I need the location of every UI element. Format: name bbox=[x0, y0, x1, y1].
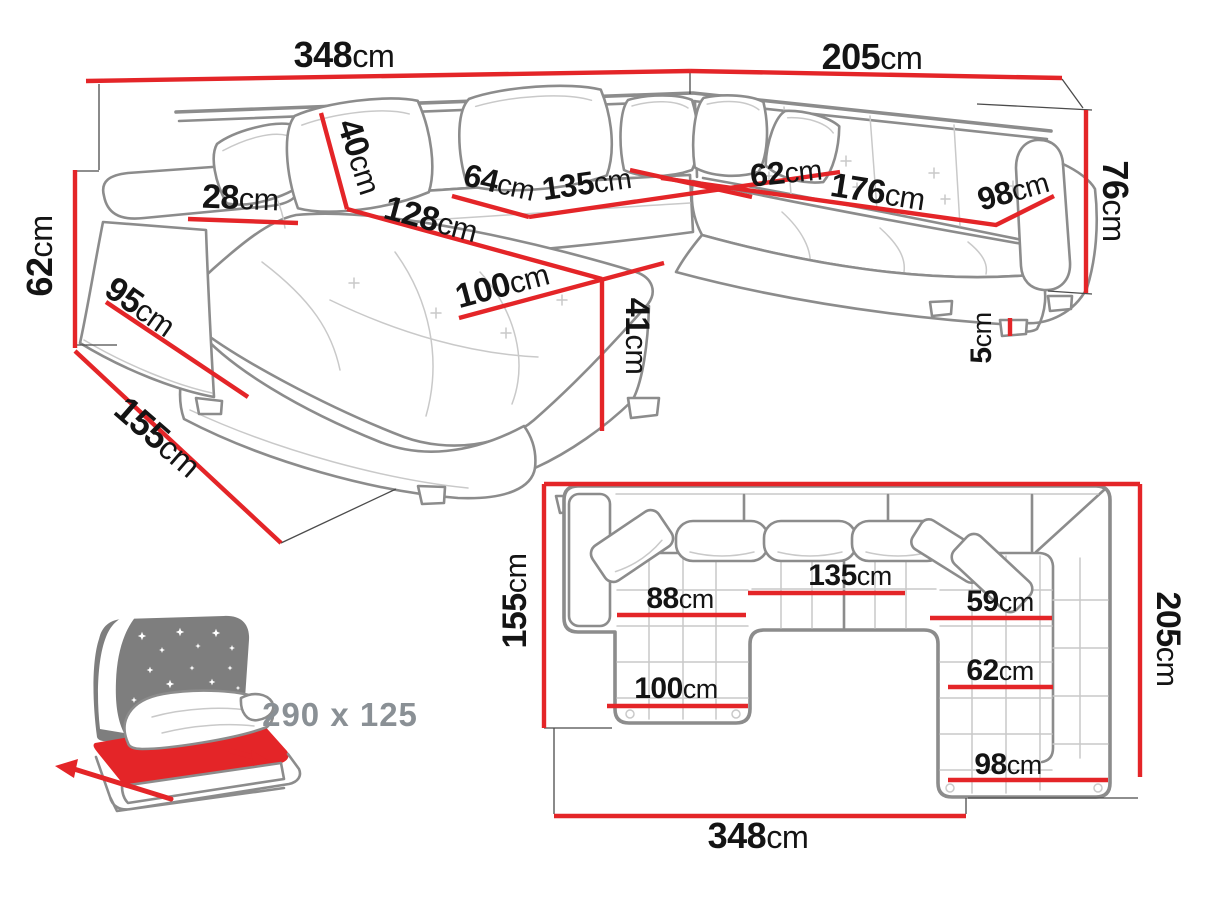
sleeping-size-label: 290 x 125 bbox=[262, 696, 418, 733]
dimension-label-plan-right-seat-width: 59cm bbox=[966, 585, 1033, 618]
dimension-label-plan-chaise-width: 100cm bbox=[634, 672, 718, 705]
dimension-label-plan-right-inner-width: 62cm bbox=[966, 654, 1033, 687]
pillow bbox=[764, 521, 856, 561]
dimension-label-armrest-width: 28cm bbox=[201, 178, 279, 219]
dimension-label-backrest-height: 76cm bbox=[1095, 160, 1136, 241]
dimension-label-plan-right-end-width: 98cm bbox=[974, 748, 1041, 781]
dimension-label-right-width: 205cm bbox=[822, 36, 923, 77]
dimension-label-plan-middle-seat-width: 135cm bbox=[808, 559, 892, 592]
dimension-label-plan-left-seat-width: 88cm bbox=[646, 582, 713, 615]
dimension-label-arm-height: 62cm bbox=[19, 215, 60, 296]
sofa-dimension-figure: 348cm205cm76cm62cm155cm95cm28cm40cm128cm… bbox=[0, 0, 1214, 911]
dimension-label-leg-height: 5cm bbox=[965, 312, 998, 363]
dimension-label-seat-height: 41cm bbox=[618, 298, 656, 375]
dimension-label-plan-depth-left: 155cm bbox=[496, 553, 534, 648]
pillow bbox=[676, 521, 768, 561]
furniture-dimension-diagram: 348cm205cm76cm62cm155cm95cm28cm40cm128cm… bbox=[0, 0, 1214, 911]
dimension-label-back-width: 348cm bbox=[294, 34, 395, 75]
pillow bbox=[621, 96, 698, 177]
sofa-perspective-drawing bbox=[80, 82, 1097, 513]
dimension-label-plan-total-width: 348cm bbox=[708, 815, 809, 856]
dimension-label-plan-depth-right: 205cm bbox=[1149, 591, 1187, 686]
